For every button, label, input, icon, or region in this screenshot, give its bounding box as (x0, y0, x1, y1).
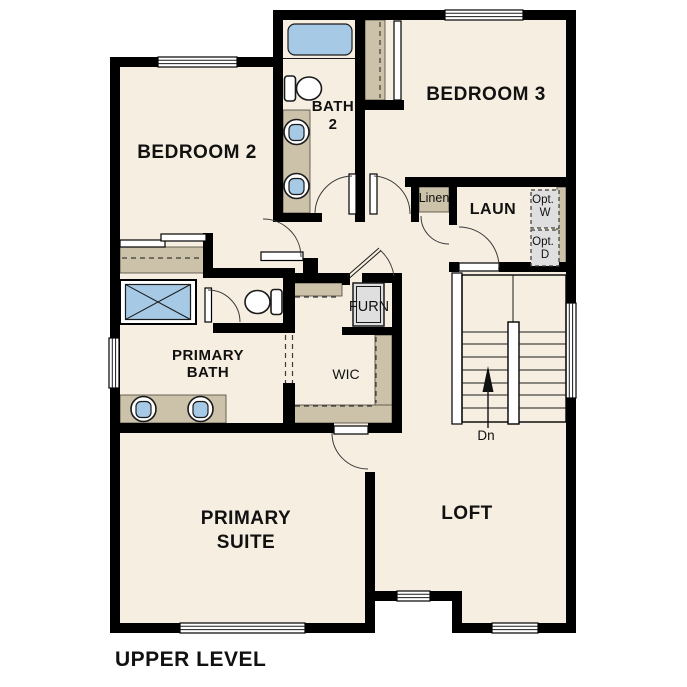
stair-rail (452, 273, 462, 424)
bath2-sink-1 (284, 120, 309, 145)
primary-suite-label-line1: PRIMARY (201, 508, 291, 529)
window-notch (397, 591, 430, 601)
floorplan-page: BEDROOM 2 BEDROOM 3 BATH 2 Linen LAUN Op… (0, 0, 687, 687)
primary-bath-label-line1: PRIMARY (172, 347, 244, 364)
window-stairs-right (566, 303, 576, 398)
window-loft-bottom (492, 623, 538, 633)
floorplan-drawing: BEDROOM 2 BEDROOM 3 BATH 2 Linen LAUN Op… (0, 0, 687, 687)
window-bedroom3-top (445, 10, 523, 20)
furnace-label: FURN (349, 299, 389, 315)
primary-bath-label-line2: BATH (187, 364, 230, 381)
window-primary-bath-left (109, 338, 119, 388)
bedroom2-label: BEDROOM 2 (137, 142, 257, 163)
page-title: UPPER LEVEL (115, 648, 266, 671)
bedroom3-closet (365, 20, 385, 100)
bedroom3-closet-door (394, 21, 401, 100)
bedroom3-label: BEDROOM 3 (426, 84, 546, 105)
primary-sink-2 (188, 397, 213, 422)
bath2-label-line1: BATH (312, 98, 355, 115)
bathtub (288, 24, 352, 55)
primary-sink-1 (131, 397, 156, 422)
opt-dryer-label-line2: D (541, 249, 549, 261)
wic-shelf-bottom (293, 405, 392, 423)
primary-toilet (245, 290, 282, 315)
opt-washer-label-line2: W (540, 207, 551, 219)
opt-washer-label-line1: Opt. (532, 194, 554, 206)
primary-suite-label-line2: SUITE (217, 532, 275, 553)
window-bedroom2-top (158, 57, 237, 67)
opt-dryer-label-line1: Opt. (532, 236, 554, 248)
linen-label: Linen (419, 191, 450, 205)
primary-shower (120, 280, 196, 324)
stairs-down-label: Dn (477, 428, 494, 443)
wic-shelf-top (293, 283, 342, 296)
wic-label: WIC (332, 366, 359, 382)
window-primary-suite-bottom (180, 623, 305, 633)
bath2-sink-2 (284, 174, 309, 199)
bath2-label-line2: 2 (329, 116, 338, 133)
bedroom2-closet (120, 247, 205, 273)
loft-label: LOFT (441, 503, 493, 524)
laundry-label: LAUN (470, 201, 516, 218)
